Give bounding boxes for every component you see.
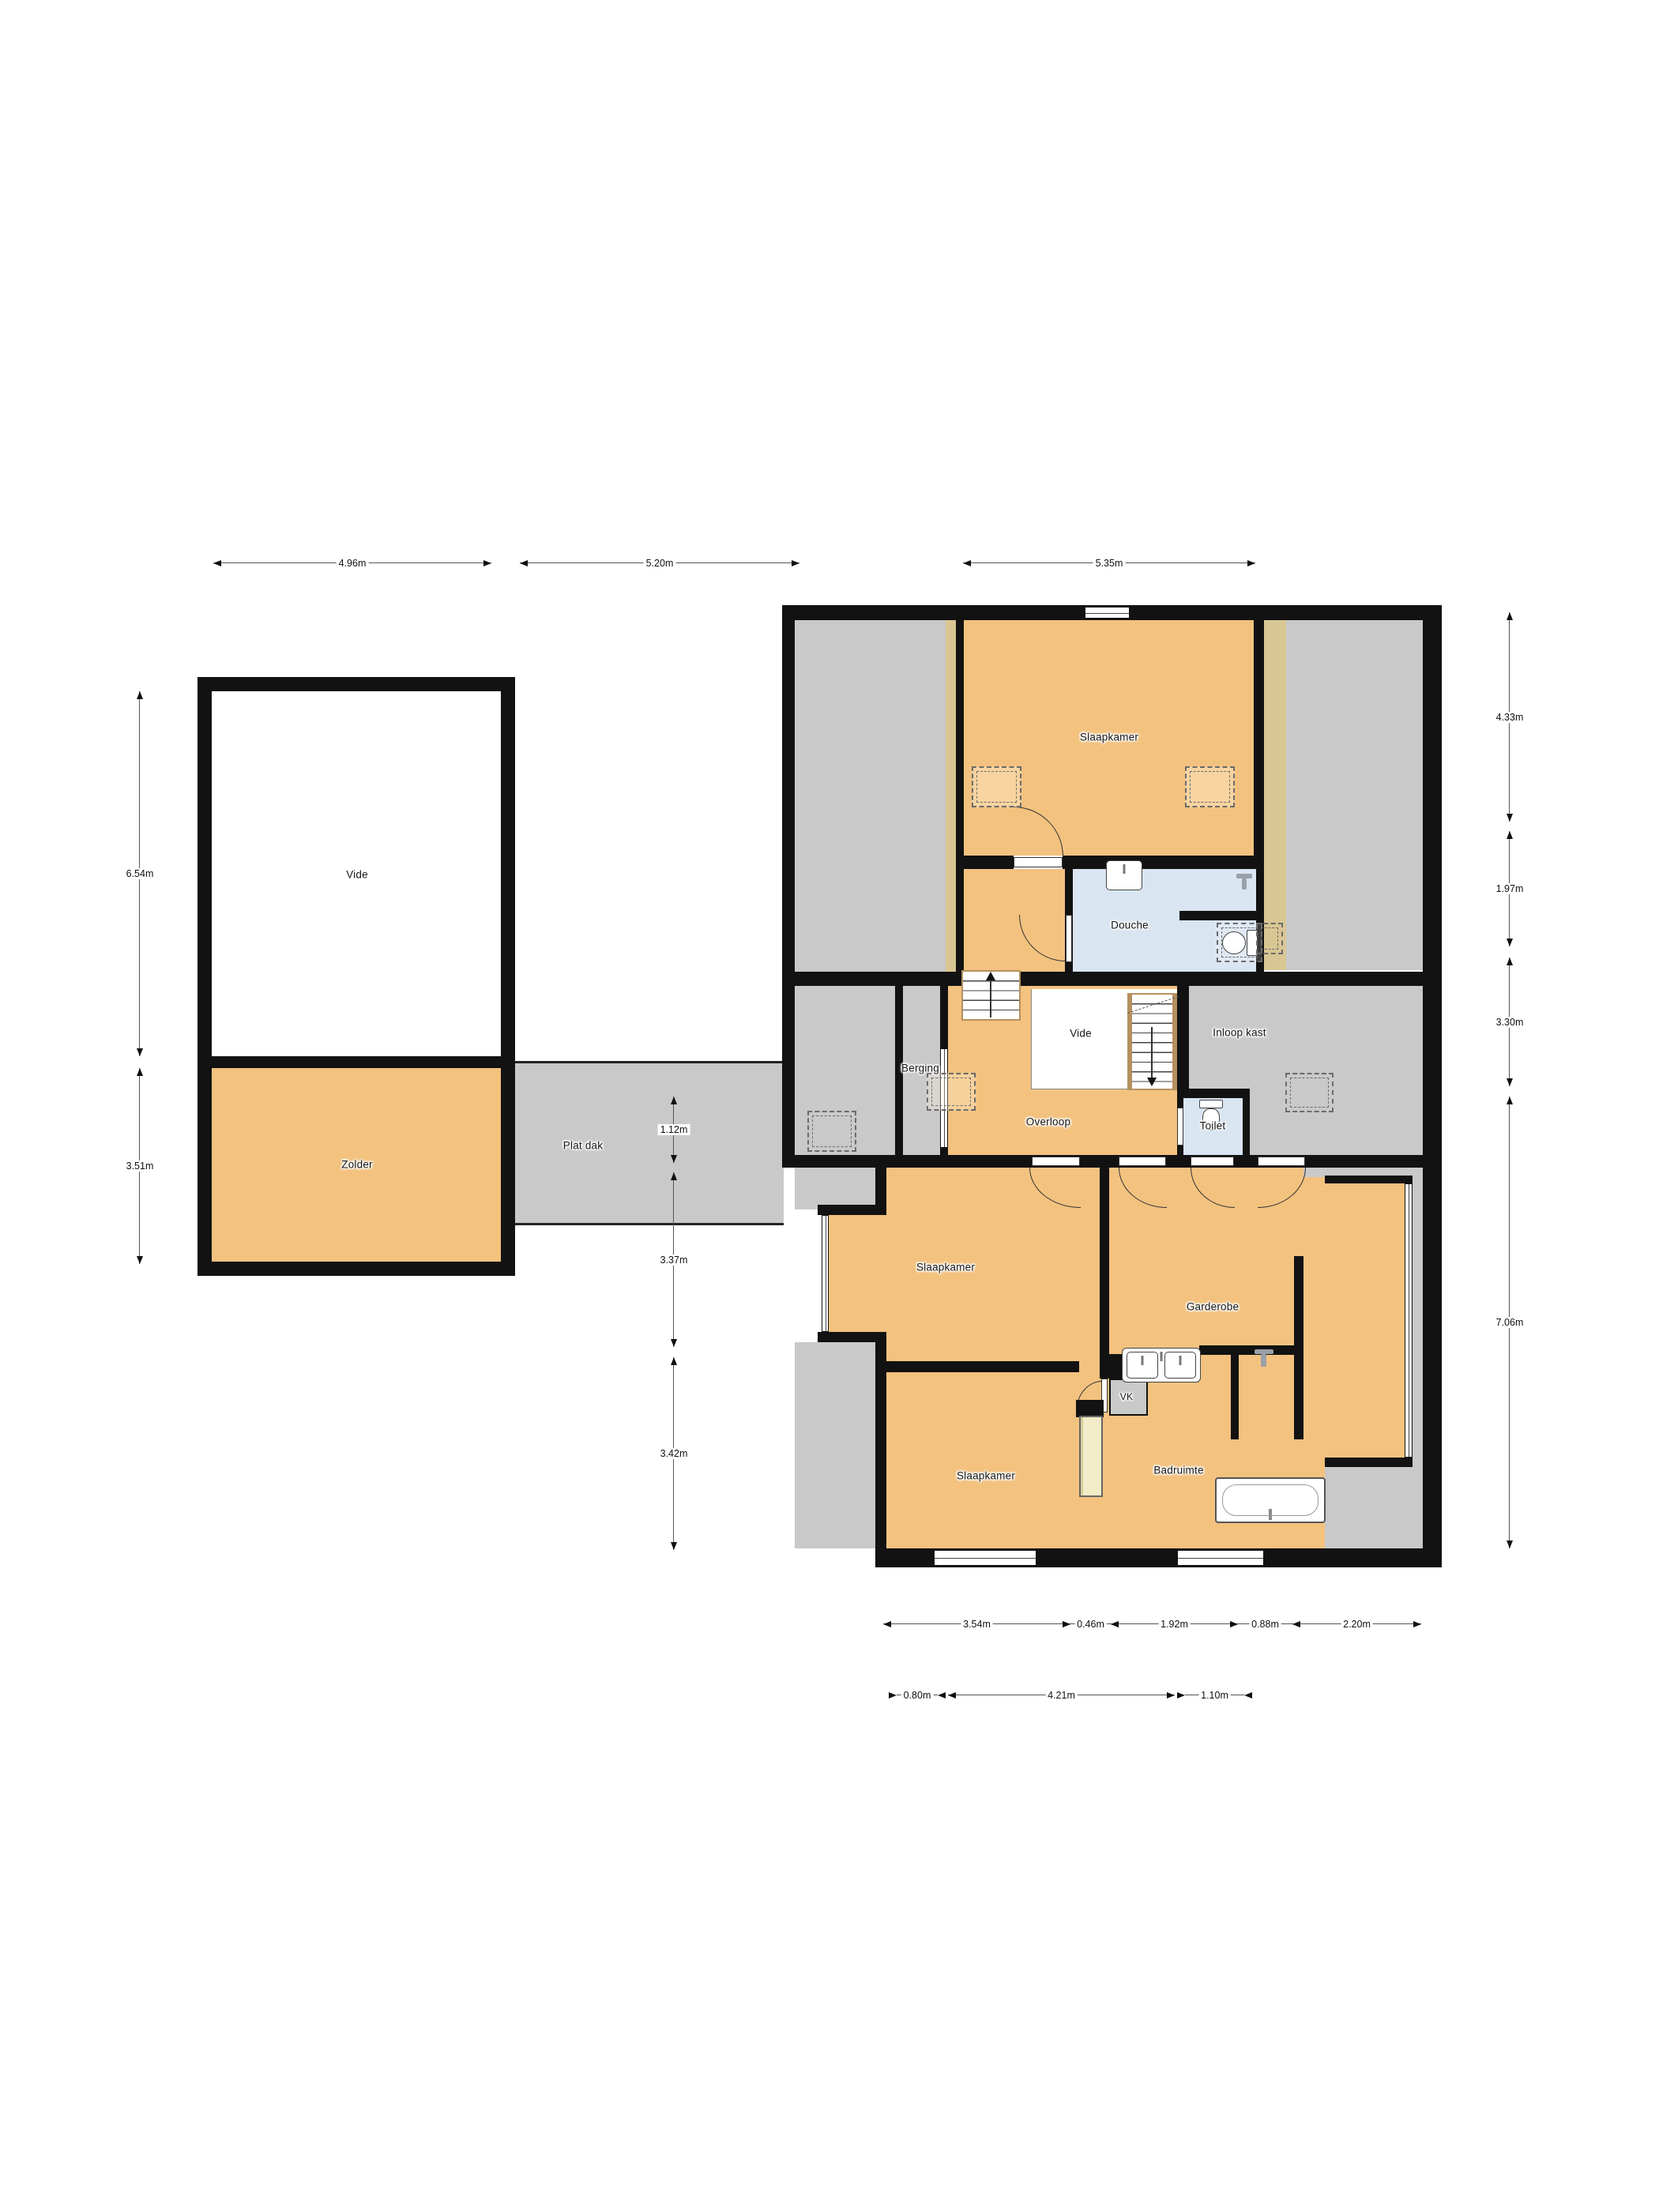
toilet-icon [1222, 931, 1246, 954]
dimension-middle-2: 3.37m [673, 1172, 674, 1347]
window-bottom-slaapkamer [934, 1550, 1036, 1566]
room-label-slaapkamer-mid: Slaapkamer [916, 1262, 975, 1273]
dimension-bottom1-2: 0.46m [1070, 1623, 1111, 1624]
left-building-left-wall [197, 677, 212, 1276]
double-sink-basin [1164, 1352, 1196, 1379]
dimension-middle-3: 3.42m [673, 1357, 674, 1550]
dimension-right-3: 3.30m [1509, 957, 1510, 1086]
slaapkamer-top-left-wall [956, 620, 964, 972]
window-bay [822, 1215, 829, 1332]
roof-window-dashed [1285, 1073, 1334, 1112]
bay-floor [829, 1215, 886, 1332]
dimension-left-2: 3.51m [139, 1068, 140, 1264]
dimension-bottom2-2: 4.21m [948, 1695, 1175, 1695]
room-label-vk: VK [1120, 1391, 1133, 1402]
roof-area-top-left [795, 620, 946, 972]
shower-faucet-icon [1242, 878, 1247, 890]
room-label-zolder: Zolder [341, 1159, 372, 1171]
left-building-right-wall [501, 677, 515, 1276]
floor-plan: Vide Zolder Plat dak Slaapkamer Douche [0, 0, 1659, 2212]
bay-top-wall [818, 1205, 886, 1215]
stairs-down [1127, 993, 1177, 1090]
window-bottom-badruimte [1177, 1550, 1264, 1566]
door-leaf-slaapkamer-top [1014, 857, 1063, 867]
douche-interior-wall [1179, 911, 1256, 920]
room-label-garderobe: Garderobe [1187, 1301, 1239, 1313]
room-label-berging: Berging [901, 1063, 939, 1074]
stairs-down-arrow-icon [1147, 1078, 1157, 1086]
roof-window-dashed [927, 1073, 976, 1111]
room-slaapkamer-bottom-floor [886, 1372, 1079, 1548]
wardrobe [1079, 1416, 1103, 1497]
roof-window-dashed [1185, 766, 1235, 807]
toilet-right-wall [1243, 1089, 1250, 1155]
room-label-vide-left: Vide [346, 869, 368, 881]
roof-area-bottom-right-corner [1325, 1467, 1423, 1548]
knee-wall-strip-right [1264, 620, 1286, 970]
door-leaf-garderobe-1 [1119, 1157, 1166, 1166]
left-building-top-wall [197, 677, 515, 691]
slaapkamer-top-bottom-wall-b [1063, 856, 1256, 869]
plat-dak-roof [515, 1061, 784, 1225]
window-top-wall [1085, 607, 1130, 619]
door-leaf-toilet [1177, 1108, 1183, 1145]
badruimte-upper-right-wall [1325, 1176, 1413, 1183]
bottom-left-wall-lower [875, 1332, 886, 1548]
shower-faucet-icon [1261, 1354, 1266, 1367]
door-leaf-garderobe-3 [1258, 1157, 1305, 1166]
room-label-douche: Douche [1111, 920, 1149, 931]
room-label-plat-dak: Plat dak [563, 1140, 603, 1152]
wardrobe-wall-block [1076, 1400, 1104, 1417]
window-right-wall [1405, 1183, 1413, 1458]
room-label-toilet: Toilet [1200, 1120, 1226, 1132]
badruimte-lower-right-wall [1325, 1458, 1413, 1467]
roof-area-bottom-left-upper [795, 1166, 886, 1209]
room-label-slaapkamer-bottom: Slaapkamer [957, 1470, 1015, 1482]
slaapkamer-mid-right-wall [1100, 1168, 1109, 1354]
roof-window-dashed [1256, 923, 1283, 954]
top-middle-divider-wall [782, 972, 1442, 986]
dimension-right-4: 7.06m [1509, 1097, 1510, 1548]
roof-area-top-right [1286, 620, 1423, 970]
door-leaf-slaapkamer-mid [1032, 1157, 1080, 1166]
stairs-up-direction-line [990, 976, 991, 1018]
dimension-right-2: 1.97m [1509, 831, 1510, 946]
dimension-bottom1-5: 2.20m [1292, 1623, 1421, 1624]
dimension-bottom1-4: 0.88m [1238, 1623, 1292, 1624]
dimension-bottom1-1: 3.54m [883, 1623, 1070, 1624]
garderobe-badruimte-wall [1199, 1345, 1294, 1355]
slaapkamer-top-right-wall [1254, 620, 1264, 859]
toilet-icon [1199, 1100, 1223, 1108]
left-building-bottom-wall [197, 1262, 515, 1276]
dimension-top-1: 4.96m [213, 562, 491, 563]
dimension-middle-1: 1.12m [673, 1097, 674, 1163]
shower-wall-stub-right [1294, 1256, 1303, 1439]
dimension-bottom2-1: 0.80m [897, 1695, 938, 1695]
vide-zolder-divider-wall [197, 1056, 515, 1068]
room-label-slaapkamer-top: Slaapkamer [1080, 732, 1138, 743]
dimension-bottom1-3: 1.92m [1111, 1623, 1238, 1624]
roof-strip-bottom-right [1413, 1176, 1423, 1467]
dimension-right-1: 4.33m [1509, 612, 1510, 822]
bay-bottom-wall [818, 1332, 886, 1342]
dimension-bottom2-3: 1.10m [1185, 1695, 1244, 1695]
double-sink-basin [1127, 1352, 1158, 1379]
knee-wall-strip-left [946, 620, 956, 972]
bathtub [1215, 1477, 1326, 1523]
room-label-inloop-kast: Inloop kast [1213, 1027, 1266, 1039]
shower-wall-stub-left [1231, 1349, 1239, 1439]
slaapkamer-top-bottom-wall-a [964, 856, 1014, 869]
room-label-overloop: Overloop [1026, 1116, 1070, 1128]
roof-area-bottom-left-lower [795, 1342, 875, 1548]
door-leaf-douche [1066, 915, 1072, 962]
main-left-wall-upper [782, 605, 795, 1166]
main-right-wall [1423, 605, 1442, 1567]
roof-window-dashed [807, 1111, 856, 1152]
toilet-top-wall [1179, 1089, 1250, 1098]
sink [1106, 860, 1142, 890]
stairs-up-arrow-icon [986, 972, 995, 980]
roof-window-dashed [972, 766, 1021, 807]
slaapkamer-bottom-top-wall [886, 1361, 1079, 1372]
door-leaf-garderobe-2 [1191, 1157, 1234, 1166]
dimension-left-1: 6.54m [139, 691, 140, 1056]
inloop-kast-left-wall [1179, 980, 1189, 1089]
room-label-badruimte: Badruimte [1153, 1465, 1203, 1477]
stairs-down-direction-line [1151, 1027, 1153, 1078]
dimension-top-2: 5.20m [520, 562, 799, 563]
room-label-vide-small: Vide [1070, 1028, 1092, 1040]
dimension-top-3: 5.35m [963, 562, 1255, 563]
